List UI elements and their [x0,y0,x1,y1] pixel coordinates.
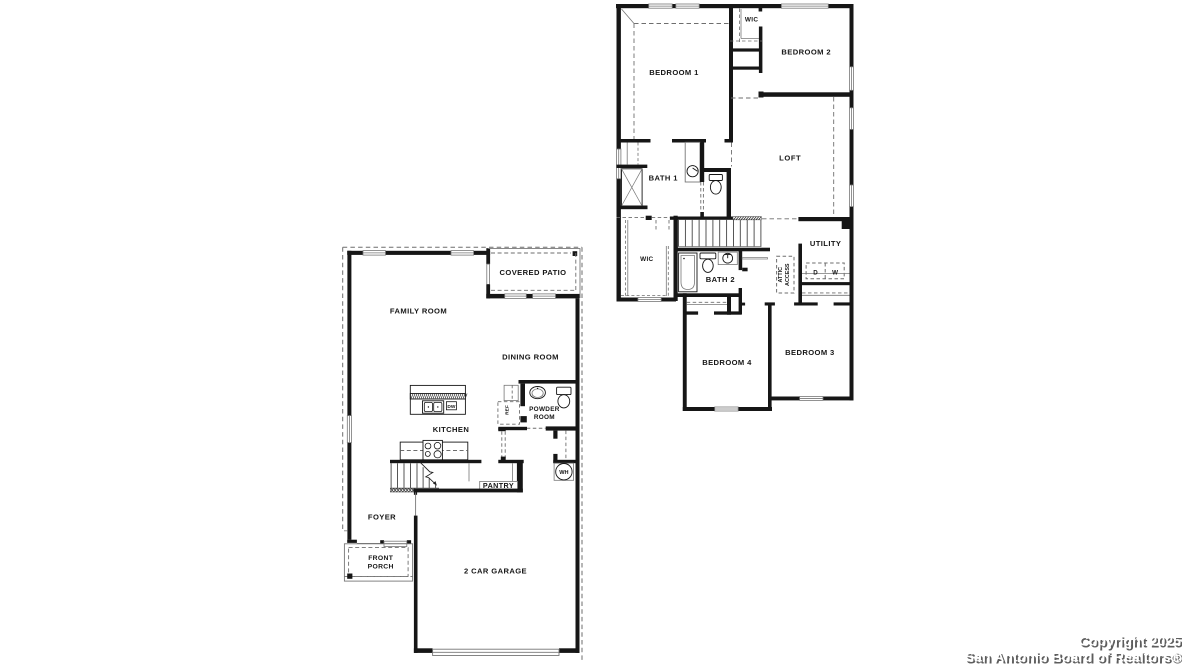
svg-text:REF: REF [505,405,511,415]
svg-text:WIC: WIC [640,256,653,263]
svg-text:WIC: WIC [745,17,758,24]
svg-text:San Antonio Board of Realtors®: San Antonio Board of Realtors® [965,650,1182,665]
svg-text:DW: DW [447,404,455,410]
svg-text:D: D [813,269,818,276]
svg-text:BATH 1: BATH 1 [649,174,679,183]
svg-text:BEDROOM 4: BEDROOM 4 [702,358,752,367]
svg-text:BEDROOM 3: BEDROOM 3 [785,348,835,357]
svg-text:UTILITY: UTILITY [810,239,841,248]
svg-text:W: W [832,269,838,276]
svg-text:LOFT: LOFT [779,153,801,162]
svg-text:DINING ROOM: DINING ROOM [502,352,559,361]
svg-text:ACCESS: ACCESS [785,263,791,286]
svg-text:KITCHEN: KITCHEN [433,425,470,434]
svg-text:BEDROOM 2: BEDROOM 2 [781,48,831,57]
svg-text:BATH 2: BATH 2 [706,275,735,284]
svg-text:BEDROOM 1: BEDROOM 1 [649,68,699,77]
svg-text:ROOM: ROOM [534,414,555,421]
svg-text:FAMILY ROOM: FAMILY ROOM [390,307,447,316]
svg-text:POWDER: POWDER [529,406,560,413]
svg-text:FOYER: FOYER [368,513,396,522]
svg-text:COVERED PATIO: COVERED PATIO [500,268,567,277]
svg-text:Copyright 2025: Copyright 2025 [1079,634,1182,650]
svg-text:WH: WH [559,470,568,476]
svg-text:PORCH: PORCH [368,563,394,570]
svg-text:FRONT: FRONT [368,555,393,562]
svg-text:ATTIC: ATTIC [778,267,784,283]
svg-text:2 CAR GARAGE: 2 CAR GARAGE [464,566,527,575]
